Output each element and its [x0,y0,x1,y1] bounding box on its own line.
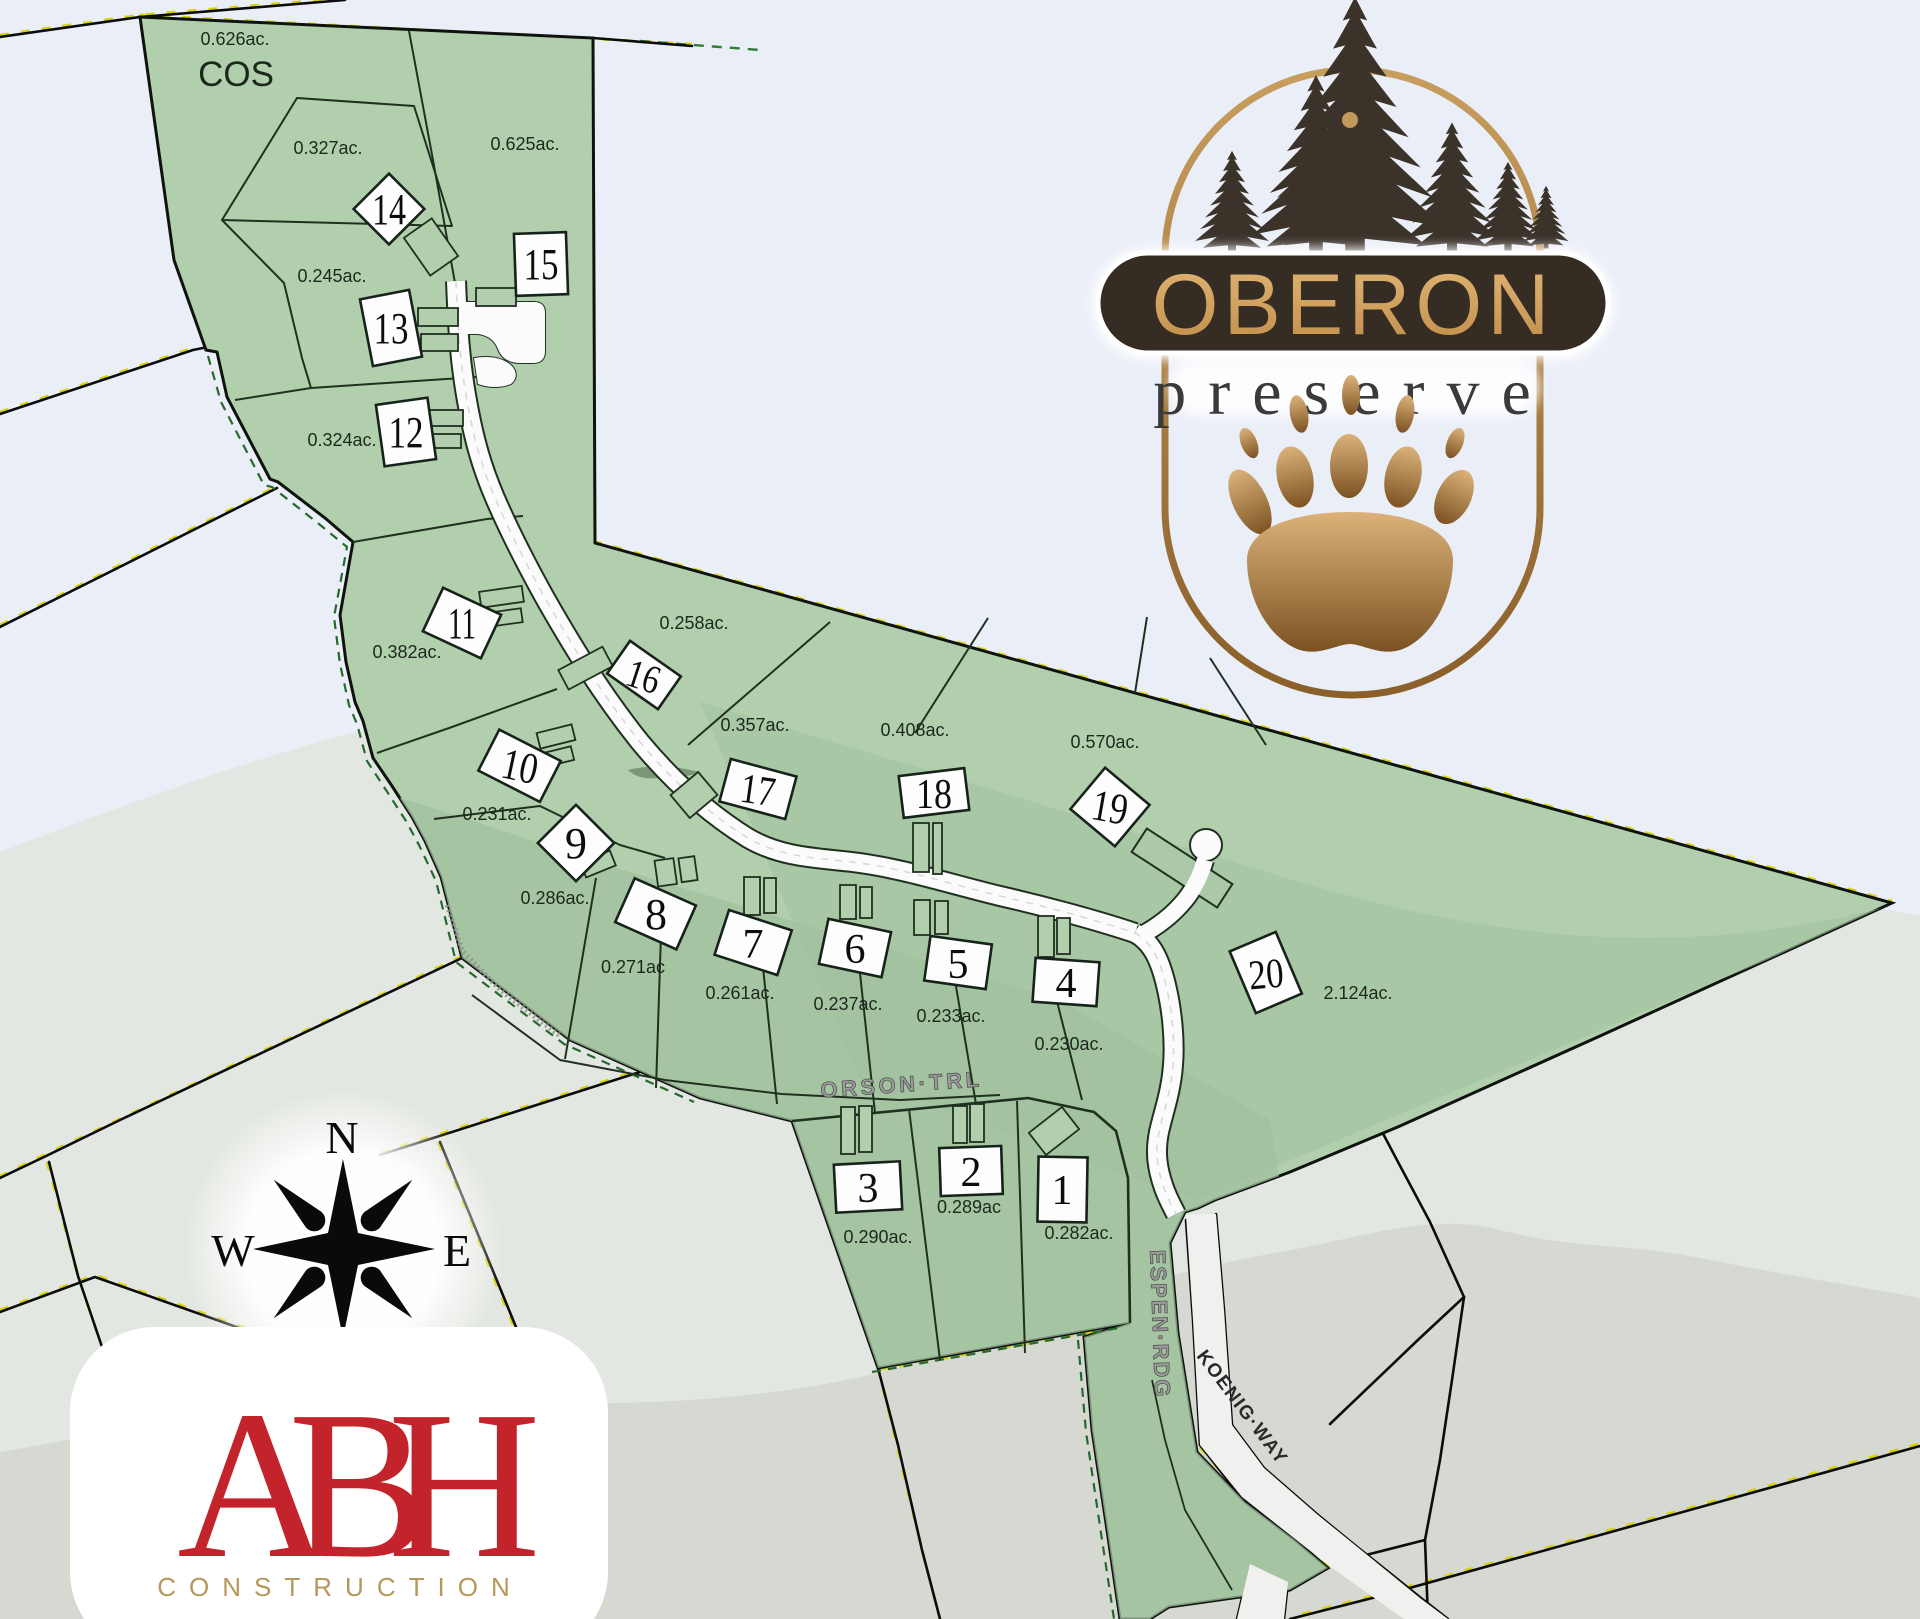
svg-text:0.289ac: 0.289ac [937,1197,1001,1217]
svg-text:0.261ac.: 0.261ac. [705,983,774,1003]
svg-text:0.237ac.: 0.237ac. [813,994,882,1014]
svg-text:0.231ac.: 0.231ac. [462,804,531,824]
svg-text:15: 15 [524,240,559,289]
svg-text:E: E [443,1225,471,1276]
svg-text:ABH: ABH [177,1367,535,1602]
svg-text:17: 17 [737,766,778,816]
svg-text:5: 5 [948,942,969,988]
svg-text:3: 3 [858,1166,879,1212]
svg-text:6: 6 [845,927,866,973]
svg-text:ESPEN·RDG: ESPEN·RDG [1145,1249,1175,1399]
svg-text:0.408ac.: 0.408ac. [880,720,949,740]
svg-text:14: 14 [372,185,406,234]
svg-text:0.357ac.: 0.357ac. [720,715,789,735]
svg-text:7: 7 [743,922,764,968]
svg-text:0.233ac.: 0.233ac. [916,1006,985,1026]
svg-text:0.382ac.: 0.382ac. [372,642,441,662]
svg-text:4: 4 [1056,961,1077,1007]
svg-text:20: 20 [1247,951,1286,1000]
svg-text:0.324ac.: 0.324ac. [307,430,376,450]
svg-text:0.230ac.: 0.230ac. [1034,1034,1103,1054]
svg-text:12: 12 [389,408,424,457]
svg-text:11: 11 [448,599,476,648]
svg-text:0.570ac.: 0.570ac. [1070,732,1139,752]
svg-text:2.124ac.: 2.124ac. [1323,983,1392,1003]
svg-text:2: 2 [961,1150,982,1196]
svg-text:OBERON: OBERON [1152,257,1555,353]
svg-text:COS: COS [198,55,274,94]
svg-text:0.626ac.: 0.626ac. [200,29,269,49]
svg-text:0.286ac.: 0.286ac. [520,888,589,908]
svg-text:0.282ac.: 0.282ac. [1044,1223,1113,1243]
svg-text:1: 1 [1052,1168,1073,1214]
svg-text:13: 13 [374,304,409,353]
svg-text:W: W [211,1225,255,1276]
svg-text:0.245ac.: 0.245ac. [297,266,366,286]
svg-text:0.290ac.: 0.290ac. [843,1227,912,1247]
svg-text:0.327ac.: 0.327ac. [293,138,362,158]
svg-text:0.625ac.: 0.625ac. [490,134,559,154]
svg-text:CONSTRUCTION: CONSTRUCTION [157,1572,522,1602]
svg-text:9: 9 [565,819,587,868]
svg-text:0.271ac: 0.271ac [601,957,665,977]
svg-text:8: 8 [645,890,667,939]
svg-text:N: N [325,1112,358,1163]
svg-text:0.258ac.: 0.258ac. [659,613,728,633]
svg-text:18: 18 [916,772,952,818]
